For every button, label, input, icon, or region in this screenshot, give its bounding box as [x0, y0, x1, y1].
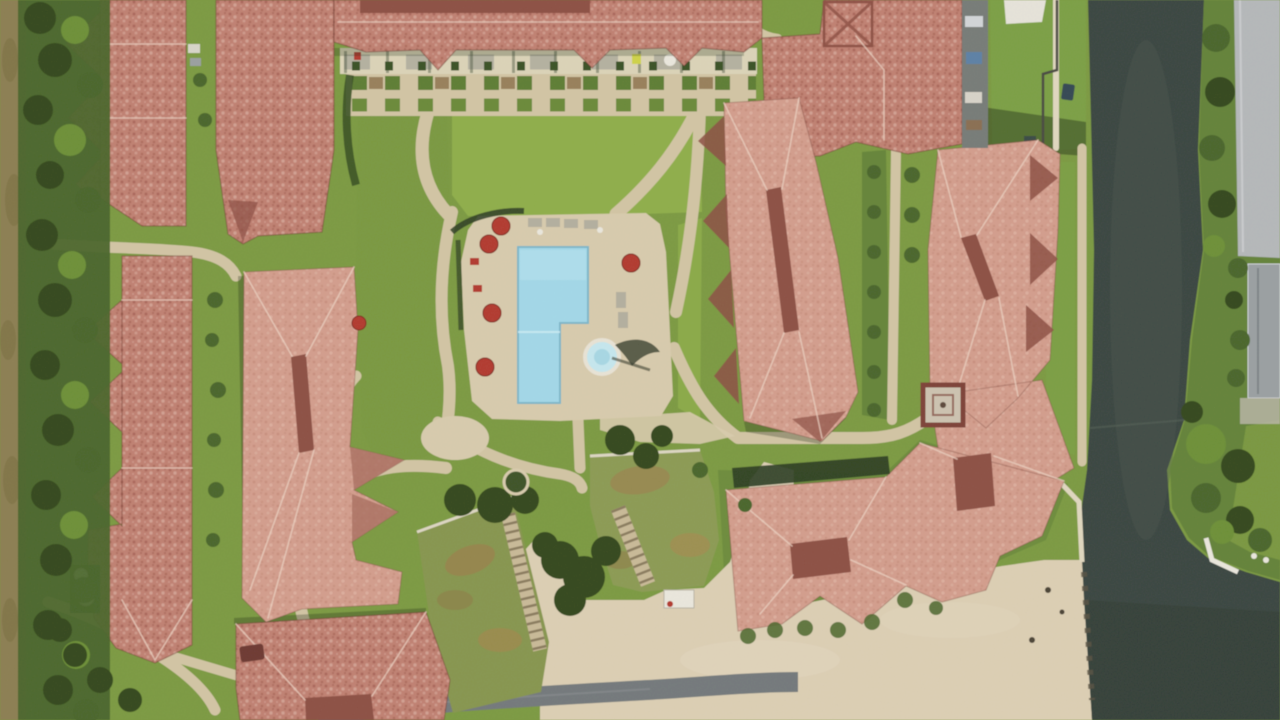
- photo-grain: [0, 0, 1280, 720]
- satellite-image: [0, 0, 1280, 720]
- satellite-map-canvas[interactable]: [0, 0, 1280, 720]
